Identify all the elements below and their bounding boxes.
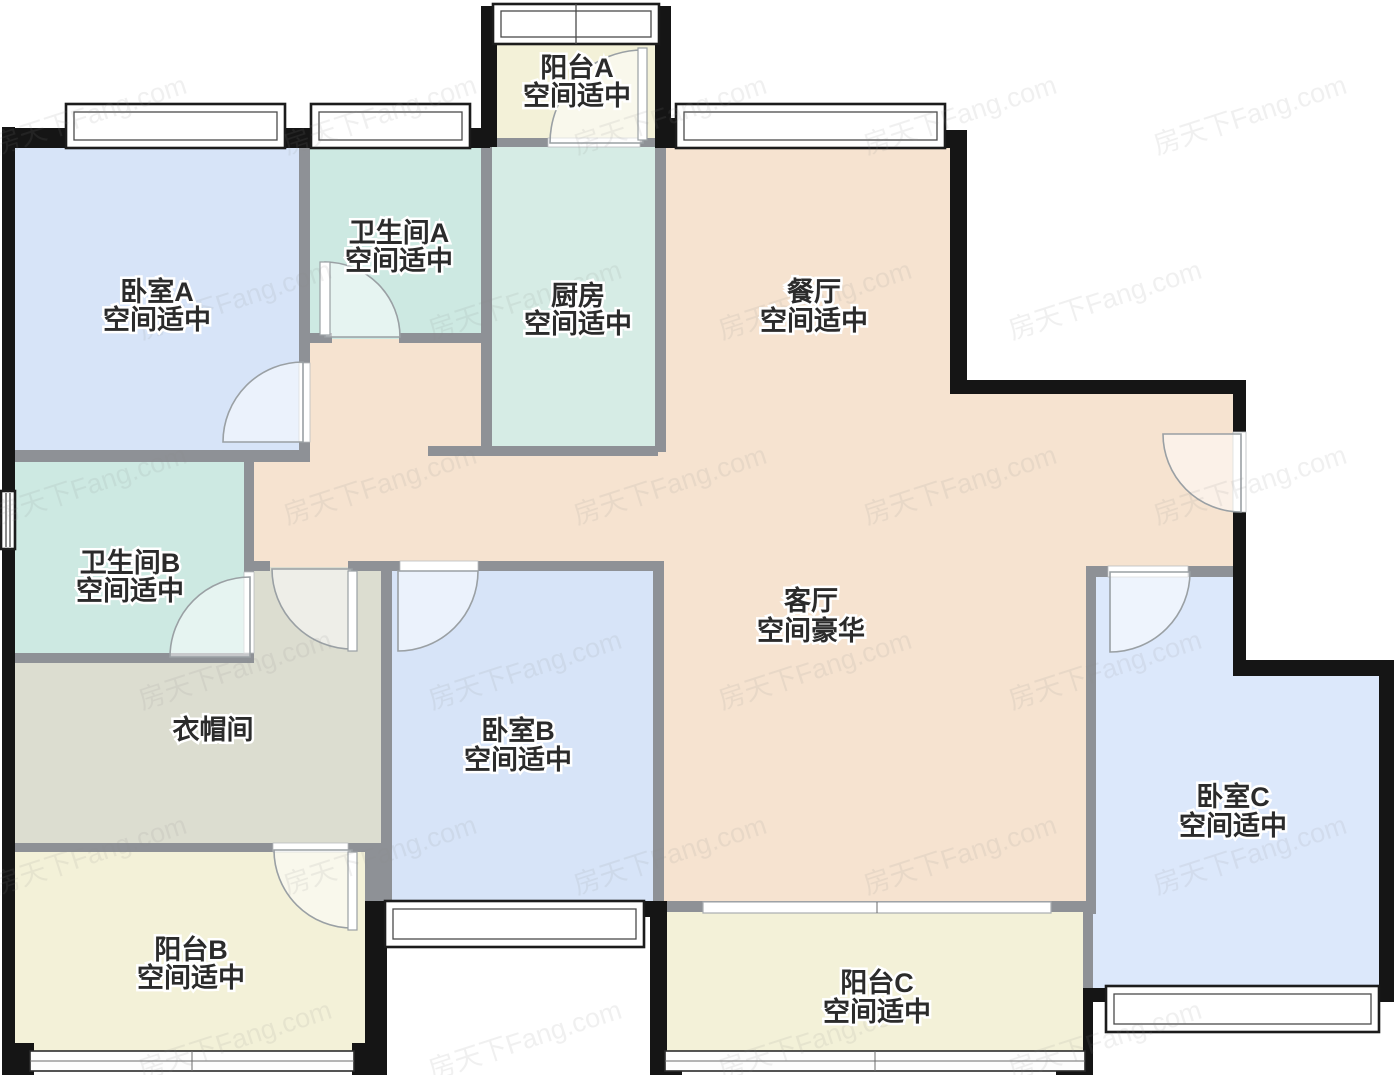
label-dining-status: 空间适中	[760, 305, 868, 336]
label-balcony-a-status: 空间适中	[523, 80, 631, 111]
label-balcony-b-status: 空间适中	[137, 962, 245, 993]
label-kitchen-name: 厨房	[551, 281, 605, 311]
floor-plan: 房天下Fang.com房天下Fang.com房天下Fang.com房天下Fang…	[0, 0, 1400, 1075]
slider-living-balcony-c	[703, 902, 1051, 913]
label-bathroom-a-status: 空间适中	[345, 245, 453, 276]
label-balcony-a-name: 阳台A	[540, 52, 614, 83]
label-bedroom-b-name: 卧室B	[481, 715, 555, 746]
watermark: 房天下Fang.com	[1005, 255, 1205, 346]
floor-plan-canvas: 房天下Fang.com房天下Fang.com房天下Fang.com房天下Fang…	[0, 0, 1400, 1075]
label-balcony-b-name: 阳台B	[154, 934, 228, 965]
label-living-status: 空间豪华	[757, 615, 865, 646]
label-balcony-c-status: 空间适中	[823, 996, 931, 1027]
label-kitchen-status: 空间适中	[524, 308, 632, 339]
room-dining-living-floor	[653, 146, 955, 907]
label-bedroom-b-status: 空间适中	[464, 744, 572, 775]
label-bathroom-b-status: 空间适中	[76, 575, 184, 606]
window-balcony-a-top	[493, 4, 659, 44]
label-living-name: 客厅	[784, 585, 838, 616]
watermark: 房天下Fang.com	[1150, 70, 1350, 161]
label-dining-name: 餐厅	[787, 277, 841, 307]
label-bathroom-a-name: 卫生间A	[349, 218, 450, 248]
label-cloakroom-name: 衣帽间	[173, 714, 254, 745]
label-bedroom-a-status: 空间适中	[103, 304, 211, 335]
label-bedroom-c-name: 卧室C	[1196, 781, 1270, 812]
label-bathroom-b-name: 卫生间B	[80, 548, 181, 578]
label-balcony-c-name: 阳台C	[840, 967, 914, 998]
watermark: 房天下Fang.com	[425, 995, 625, 1075]
label-bedroom-a-name: 卧室A	[120, 276, 194, 307]
label-bedroom-c-status: 空间适中	[1179, 810, 1287, 841]
window-bedroom-b-bottom	[385, 901, 644, 947]
